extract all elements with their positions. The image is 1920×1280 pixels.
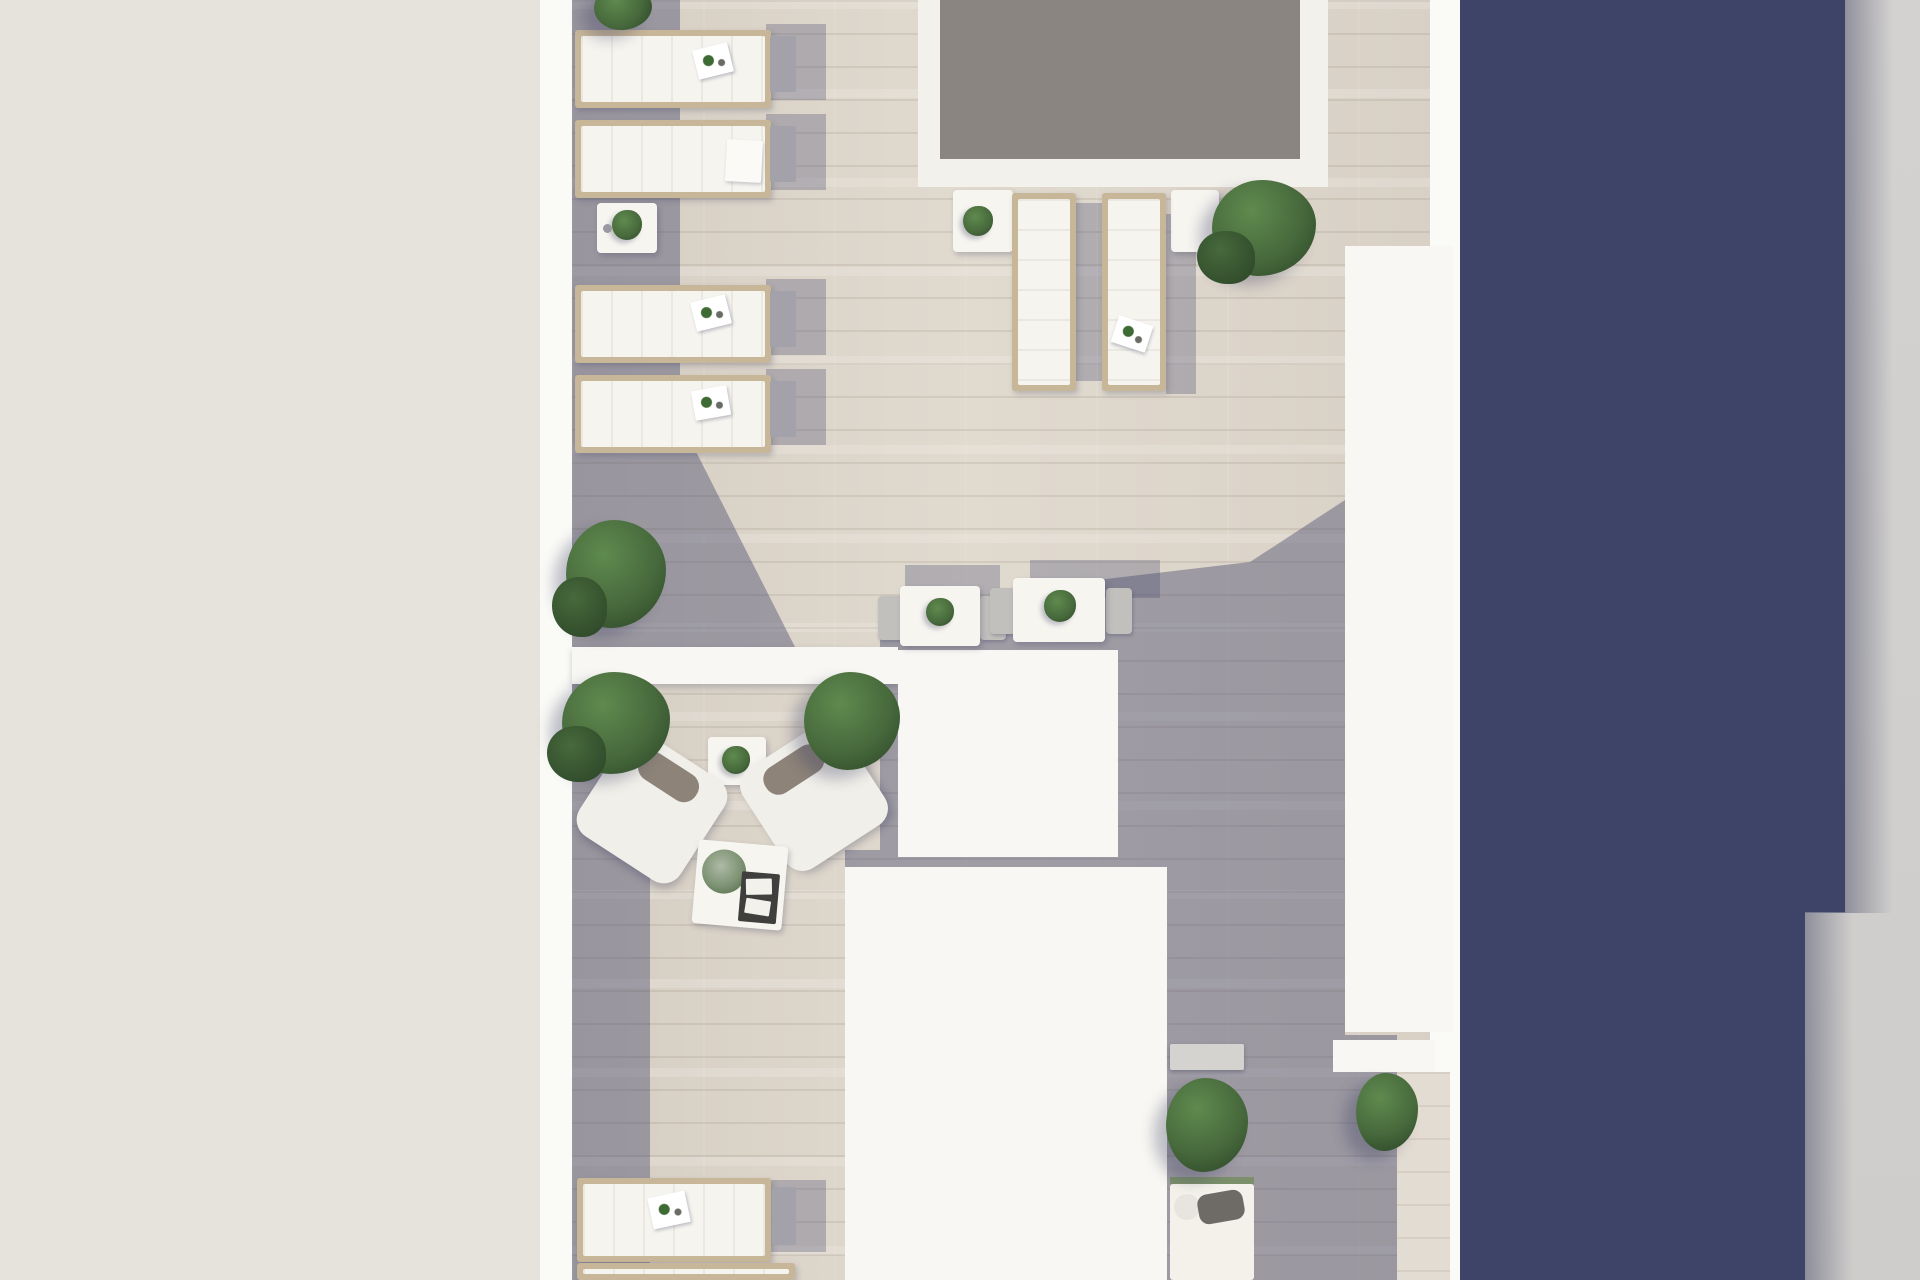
lounger-side-table-4 bbox=[770, 381, 796, 437]
bottom-lounger-side-table bbox=[772, 1187, 796, 1245]
sun-lounger-row-3 bbox=[575, 285, 771, 363]
bottom-lounger-2-cropped bbox=[577, 1263, 795, 1280]
daybed-pillow bbox=[1174, 1194, 1200, 1220]
bush-lobe bbox=[547, 726, 606, 782]
plant-on-bistro-table-1 bbox=[926, 598, 954, 626]
pool-lounger-left bbox=[1012, 193, 1076, 391]
planter-bench bbox=[1170, 1044, 1244, 1070]
plant-on-pool-table-left bbox=[963, 206, 993, 236]
sun-lounger-row-1 bbox=[575, 30, 771, 108]
towel-row-2 bbox=[725, 139, 763, 183]
lounger-cushion bbox=[581, 291, 765, 357]
magazine-row-4 bbox=[691, 385, 732, 421]
roof-volume-upper bbox=[898, 650, 1118, 857]
left-parapet-wall bbox=[540, 0, 572, 1280]
daybed-cushion bbox=[1196, 1188, 1247, 1226]
bistro-chair-2b bbox=[1106, 588, 1132, 634]
rooftop-terrace-render: Top-down architectural 3D rendering of a… bbox=[0, 0, 1920, 1280]
bush-lobe bbox=[1197, 231, 1254, 284]
plant-on-bistro-table-2 bbox=[1044, 590, 1076, 622]
lounger-side-table-2 bbox=[770, 126, 796, 182]
magazine-tray bbox=[738, 871, 780, 924]
cup-on-upper-table bbox=[603, 224, 612, 233]
lounger-cushion bbox=[581, 381, 765, 447]
daybed-planter-edge bbox=[1170, 1177, 1254, 1184]
magazine-in-tray bbox=[746, 878, 772, 894]
pool-lounger-gap-shadow bbox=[1076, 203, 1104, 381]
pool-water bbox=[940, 0, 1300, 159]
lounger-cushion bbox=[583, 1269, 789, 1274]
coffee-table bbox=[692, 839, 789, 931]
pool-lounger-right bbox=[1102, 193, 1166, 391]
roof-volume-lower bbox=[845, 867, 1167, 1280]
lounger-cushion bbox=[1018, 199, 1070, 385]
lounger-side-table-1 bbox=[770, 36, 796, 92]
magazine-in-tray bbox=[744, 898, 771, 917]
lounger-side-table-3 bbox=[770, 291, 796, 347]
plant-on-upper-table bbox=[612, 210, 642, 240]
roof-volume-right bbox=[1345, 246, 1453, 1032]
daybed bbox=[1170, 1184, 1254, 1280]
facade-shadow-lower bbox=[1805, 913, 1853, 1280]
right-ledge bbox=[1333, 1040, 1435, 1072]
lounger-cushion bbox=[581, 36, 765, 102]
facade-shadow-upper bbox=[1845, 0, 1893, 913]
bush-lobe bbox=[552, 577, 607, 636]
sun-lounger-row-4 bbox=[575, 375, 771, 453]
lounger-cushion bbox=[1108, 199, 1160, 385]
